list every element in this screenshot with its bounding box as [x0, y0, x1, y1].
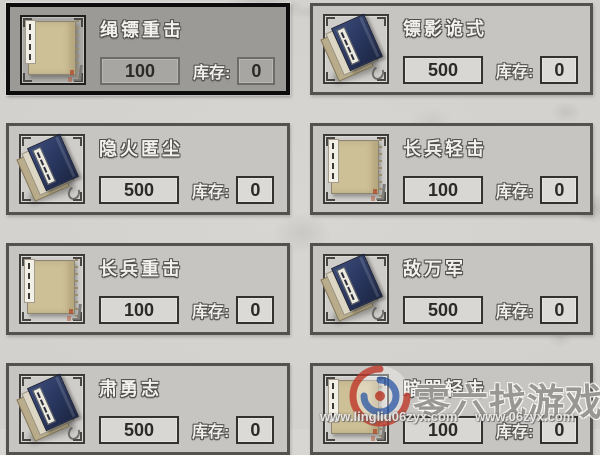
blue-books-icon [21, 376, 83, 442]
tan-book-icon [22, 17, 84, 83]
price-box: 500 [99, 416, 179, 444]
stock-label: 库存: [192, 298, 229, 322]
stock-label: 库存: [193, 59, 230, 83]
stock-box: 0 [540, 416, 578, 444]
shop-item-card[interactable]: 镖影诡式 500 库存: 0 [310, 3, 593, 95]
stock-box: 0 [236, 176, 274, 204]
book-label-strip [328, 139, 339, 183]
item-title: 长兵轻击 [403, 135, 487, 161]
stock-box: 0 [540, 296, 578, 324]
book-label-strip [24, 259, 35, 303]
icon-corner-mark [73, 65, 83, 81]
item-values-row: 500 库存: 0 [99, 176, 274, 204]
blue-books-icon [21, 136, 83, 202]
stock-label: 库存: [496, 418, 533, 442]
item-values-row: 100 库存: 0 [100, 57, 275, 85]
shop-item-card[interactable]: 长兵重击 100 库存: 0 [6, 243, 290, 335]
item-values-row: 100 库存: 0 [403, 416, 578, 444]
item-title: 敌万军 [403, 255, 466, 281]
item-icon-frame [323, 134, 389, 204]
stock-value: 0 [554, 180, 564, 201]
book-label-strip [328, 379, 339, 423]
price-box: 100 [100, 57, 180, 85]
tan-book-icon [325, 136, 387, 202]
item-icon-frame [323, 254, 389, 324]
item-icon-frame [19, 254, 85, 324]
price-value: 100 [124, 300, 154, 321]
price-box: 500 [99, 176, 179, 204]
tan-book-icon [325, 376, 387, 442]
stock-box: 0 [237, 57, 275, 85]
item-title: 长兵重击 [99, 255, 183, 281]
stock-value: 0 [250, 180, 260, 201]
stock-label: 库存: [496, 58, 533, 82]
book-label-strip [25, 20, 36, 64]
stock-value: 0 [250, 420, 260, 441]
icon-corner-mark [72, 304, 82, 320]
price-box: 100 [99, 296, 179, 324]
stock-label: 库存: [192, 418, 229, 442]
stock-value: 0 [251, 61, 261, 82]
item-values-row: 500 库存: 0 [99, 416, 274, 444]
stock-value: 0 [554, 300, 564, 321]
price-value: 500 [428, 300, 458, 321]
shop-item-card[interactable]: 长兵轻击 100 库存: 0 [310, 123, 593, 215]
price-value: 100 [428, 420, 458, 441]
blue-books-icon [325, 16, 387, 82]
price-box: 100 [403, 176, 483, 204]
shop-item-card[interactable]: 敌万军 500 库存: 0 [310, 243, 593, 335]
icon-corner-mark [376, 424, 386, 440]
blue-books-icon [325, 256, 387, 322]
item-values-row: 500 库存: 0 [403, 296, 578, 324]
item-icon-frame [19, 134, 85, 204]
item-values-row: 500 库存: 0 [403, 56, 578, 84]
price-value: 500 [124, 420, 154, 441]
shop-item-card[interactable]: 隐火匿尘 500 库存: 0 [6, 123, 290, 215]
price-box: 500 [403, 56, 483, 84]
icon-corner-mark [376, 184, 386, 200]
stock-value: 0 [250, 300, 260, 321]
item-title: 暗器轻击 [403, 375, 487, 401]
price-box: 100 [403, 416, 483, 444]
price-value: 500 [428, 60, 458, 81]
item-values-row: 100 库存: 0 [99, 296, 274, 324]
item-icon-frame [323, 374, 389, 444]
item-icon-frame [19, 374, 85, 444]
stock-box: 0 [540, 56, 578, 84]
item-title: 肃勇志 [99, 375, 162, 401]
stock-value: 0 [554, 60, 564, 81]
stock-value: 0 [554, 420, 564, 441]
item-icon-frame [323, 14, 389, 84]
price-value: 500 [124, 180, 154, 201]
item-title: 镖影诡式 [403, 15, 487, 41]
shop-item-card[interactable]: 绳镖重击 100 库存: 0 [6, 3, 290, 95]
item-values-row: 100 库存: 0 [403, 176, 578, 204]
item-title: 绳镖重击 [100, 16, 184, 42]
shop-item-card[interactable]: 肃勇志 500 库存: 0 [6, 363, 290, 455]
item-title: 隐火匿尘 [99, 135, 183, 161]
stock-box: 0 [236, 416, 274, 444]
shop-grid: 绳镖重击 100 库存: 0 [0, 0, 600, 455]
stock-box: 0 [236, 296, 274, 324]
shop-item-card[interactable]: 暗器轻击 100 库存: 0 [310, 363, 593, 455]
stock-label: 库存: [192, 178, 229, 202]
stock-box: 0 [540, 176, 578, 204]
item-icon-frame [20, 15, 86, 85]
price-value: 100 [428, 180, 458, 201]
stock-label: 库存: [496, 178, 533, 202]
price-value: 100 [125, 61, 155, 82]
stock-label: 库存: [496, 298, 533, 322]
tan-book-icon [21, 256, 83, 322]
price-box: 500 [403, 296, 483, 324]
